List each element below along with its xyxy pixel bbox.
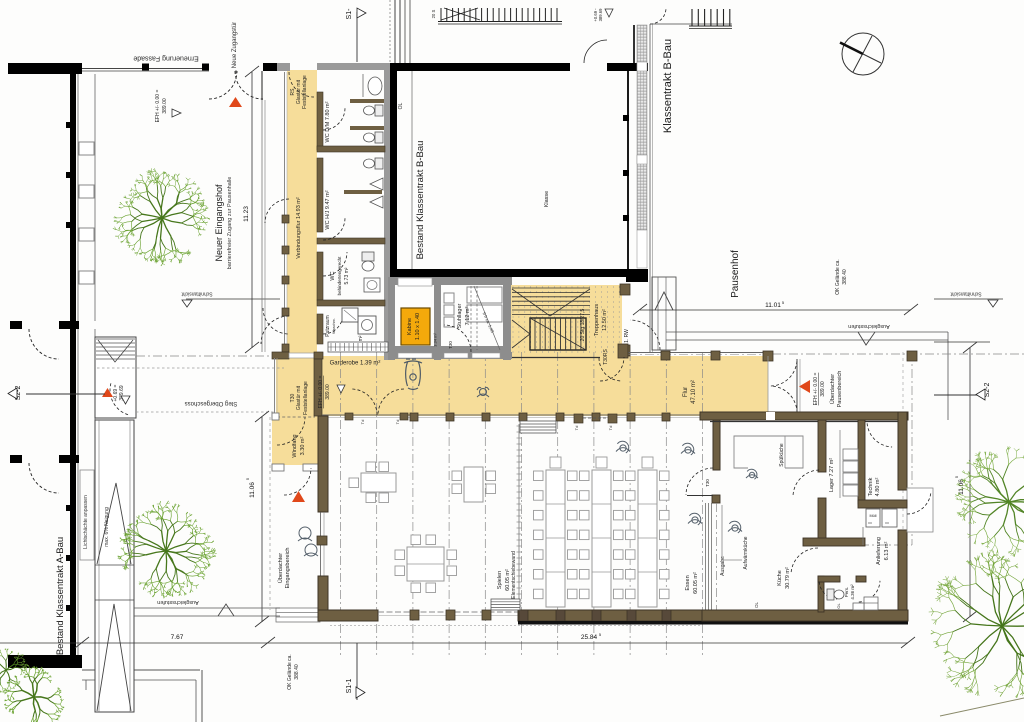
svg-text:11.01: 11.01 xyxy=(765,302,781,309)
svg-text:Td: Td xyxy=(574,426,579,431)
svg-text:47.10 m²: 47.10 m² xyxy=(691,380,697,404)
svg-text:Klasse: Klasse xyxy=(544,191,550,208)
svg-text:Stuhllager: Stuhllager xyxy=(457,303,463,328)
svg-text:Aufwärmküche: Aufwärmküche xyxy=(743,536,749,569)
svg-text:Klassentrakt B-Bau: Klassentrakt B-Bau xyxy=(662,39,674,133)
svg-text:Td: Td xyxy=(608,426,613,431)
svg-text:30.79 m²: 30.79 m² xyxy=(785,567,791,589)
svg-text:7.67: 7.67 xyxy=(171,634,184,641)
svg-text:Küche: Küche xyxy=(777,570,783,586)
svg-text:Flur: Flur xyxy=(683,387,689,397)
svg-text:20 S: 20 S xyxy=(431,9,436,18)
svg-text:EFH +/- 0.00 =: EFH +/- 0.00 = xyxy=(813,373,819,406)
svg-text:Td: Td xyxy=(360,420,365,425)
svg-text:Glastür mit: Glastür mit xyxy=(296,385,302,410)
svg-text:OL: OL xyxy=(754,602,759,609)
svg-text:Spülküche: Spülküche xyxy=(779,443,785,467)
svg-text:OK Gelände ca.: OK Gelände ca. xyxy=(287,654,293,690)
svg-text:20 Stg 18/27,5: 20 Stg 18/27,5 xyxy=(580,309,586,342)
svg-text:WC: WC xyxy=(330,271,336,280)
svg-text:Steg Obergeschoss: Steg Obergeschoss xyxy=(185,400,238,406)
svg-text:Essen: Essen xyxy=(685,575,691,590)
svg-text:OL: OL xyxy=(398,102,404,109)
svg-text:Bestand Klassentrakt B-Bau: Bestand Klassentrakt B-Bau xyxy=(415,141,426,260)
svg-text:Garderobe 1.39 m²: Garderobe 1.39 m² xyxy=(330,361,381,367)
svg-text:Putzraum: Putzraum xyxy=(325,315,331,336)
svg-text:behindertengerecht: behindertengerecht xyxy=(337,256,342,296)
svg-text:4.80 m²: 4.80 m² xyxy=(875,478,881,497)
svg-text:Kabine: Kabine xyxy=(407,318,413,335)
svg-text:1. RW: 1. RW xyxy=(624,329,630,343)
svg-text:Überdachter: Überdachter xyxy=(829,374,836,404)
svg-text:3.30 m²: 3.30 m² xyxy=(300,437,306,456)
svg-text:WC D/M 7.80 m²: WC D/M 7.80 m² xyxy=(325,101,331,142)
svg-text:Ausgleichsstufen: Ausgleichsstufen xyxy=(848,323,890,329)
svg-text:Pausenhof: Pausenhof xyxy=(730,250,741,298)
svg-text:Pers.: Pers. xyxy=(844,587,849,598)
svg-text:388.40: 388.40 xyxy=(294,664,300,680)
svg-text:Anlieferung: Anlieferung xyxy=(876,537,882,565)
svg-text:EFH +/- 0.00 =: EFH +/- 0.00 = xyxy=(155,90,161,123)
svg-text:barrierefreier Zugang zur Paus: barrierefreier Zugang zur Pausenhalle xyxy=(227,177,233,270)
svg-text:S1-: S1- xyxy=(346,8,353,20)
svg-text:Überdachter: Überdachter xyxy=(277,553,284,583)
svg-text:Müll: Müll xyxy=(870,514,877,518)
svg-text:Ausgleichsstufen: Ausgleichsstufen xyxy=(157,599,199,605)
svg-text:Verbindungsflur 14.93 m²: Verbindungsflur 14.93 m² xyxy=(296,197,302,259)
svg-text:T30: T30 xyxy=(448,341,453,349)
svg-text:6.13 m²: 6.13 m² xyxy=(884,542,890,561)
svg-text:11.23: 11.23 xyxy=(243,206,250,222)
svg-text:3.34 m²: 3.34 m² xyxy=(433,333,438,347)
svg-text:Td: Td xyxy=(395,420,400,425)
svg-text:Neuer Eingangshof: Neuer Eingangshof xyxy=(214,184,224,262)
svg-text:OL: OL xyxy=(836,603,841,609)
svg-text:Treppenhaus: Treppenhaus xyxy=(594,304,600,336)
svg-text:Pausenbereich: Pausenbereich xyxy=(837,371,843,408)
svg-text:S1-1: S1-1 xyxy=(346,679,353,694)
svg-text:Erneuerung Fassade: Erneuerung Fassade xyxy=(133,55,198,62)
svg-text:389.00: 389.00 xyxy=(162,98,168,114)
svg-text:60.05 m²: 60.05 m² xyxy=(693,572,699,594)
svg-text:Bestand Klassentrakt A-Bau: Bestand Klassentrakt A-Bau xyxy=(55,537,66,655)
svg-text:Elementschiebewand: Elementschiebewand xyxy=(511,551,517,599)
svg-text:Neue Zugangstür: Neue Zugangstür xyxy=(232,22,238,68)
svg-text:Lager 7.27 m²: Lager 7.27 m² xyxy=(829,458,835,492)
svg-text:Eingangsbereich: Eingangsbereich xyxy=(285,548,291,589)
svg-text:25.84: 25.84 xyxy=(581,634,598,641)
svg-text:Feststellanlage: Feststellanlage xyxy=(302,75,308,109)
svg-text:12.50 m²: 12.50 m² xyxy=(602,309,608,331)
svg-text:T30RS: T30RS xyxy=(603,349,609,365)
svg-text:OK Gelände ca.: OK Gelände ca. xyxy=(835,259,841,295)
svg-text:Schnittansicht: Schnittansicht xyxy=(950,290,982,296)
svg-text:388.40: 388.40 xyxy=(842,269,848,285)
svg-text:EFH +/- 0.00 =: EFH +/- 0.00 = xyxy=(318,376,324,409)
svg-text:Lichtschächte anpassen: Lichtschächte anpassen xyxy=(83,495,89,549)
svg-text:WC H/J 9.47 m²: WC H/J 9.47 m² xyxy=(325,190,331,229)
svg-text:Ausgabe: Ausgabe xyxy=(720,556,726,576)
svg-text:11.06: 11.06 xyxy=(249,482,256,498)
svg-text:4.36 m²: 4.36 m² xyxy=(850,584,855,600)
svg-text:T30: T30 xyxy=(705,479,710,487)
svg-text:Spielen: Spielen xyxy=(497,571,503,589)
svg-text:60.05 m²: 60.05 m² xyxy=(505,569,511,591)
svg-text:389.00: 389.00 xyxy=(820,381,826,397)
svg-text:1.10 x 1.40: 1.10 x 1.40 xyxy=(415,313,421,340)
svg-text:Waschm.: Waschm. xyxy=(332,318,336,334)
svg-text:389.00: 389.00 xyxy=(325,384,331,400)
svg-text:max. 6% Neigung: max. 6% Neigung xyxy=(104,507,110,547)
svg-text:Feststellanlage: Feststellanlage xyxy=(303,381,309,415)
svg-text:Schnittansicht: Schnittansicht xyxy=(181,290,213,296)
svg-text:389.69: 389.69 xyxy=(598,8,603,21)
svg-text:Technik: Technik xyxy=(868,477,874,496)
svg-text:5.73 m²: 5.73 m² xyxy=(344,267,350,284)
svg-text:Windfang: Windfang xyxy=(292,434,298,457)
svg-text:7.12 m²: 7.12 m² xyxy=(465,307,471,326)
